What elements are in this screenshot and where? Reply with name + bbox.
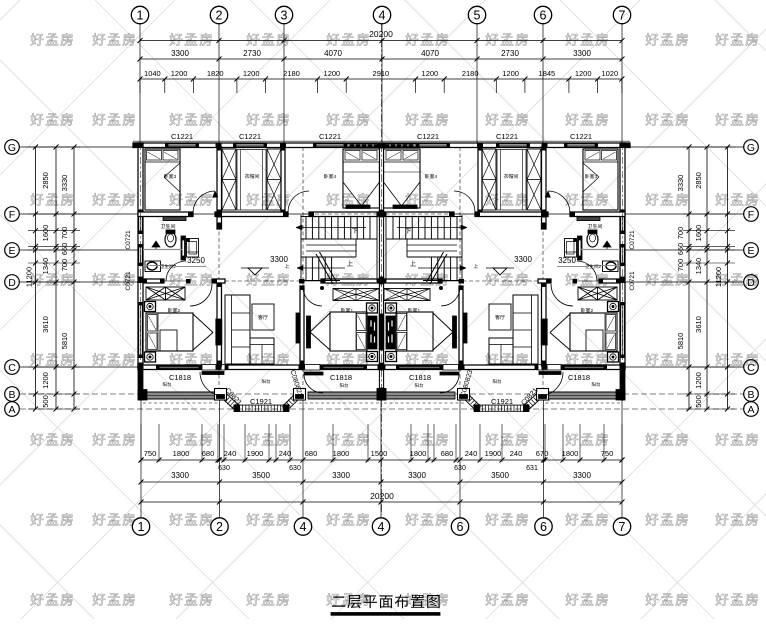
svg-text:3500: 3500	[491, 471, 509, 480]
svg-text:7: 7	[619, 520, 626, 534]
svg-text:B: B	[8, 389, 15, 401]
svg-text:C1221: C1221	[239, 132, 261, 141]
svg-text:1900: 1900	[247, 449, 264, 458]
svg-text:D: D	[747, 277, 755, 289]
svg-text:1200: 1200	[243, 69, 260, 78]
svg-text:1: 1	[351, 308, 354, 314]
svg-text:6: 6	[540, 9, 547, 23]
svg-text:2: 2	[178, 308, 181, 314]
svg-text:1600: 1600	[694, 225, 703, 242]
svg-text:3250: 3250	[187, 256, 205, 265]
svg-text:4: 4	[334, 174, 337, 180]
svg-text:3500: 3500	[252, 471, 270, 480]
svg-text:630: 630	[289, 465, 301, 472]
svg-text:4070: 4070	[421, 49, 439, 58]
svg-text:4: 4	[435, 174, 438, 180]
svg-text:700: 700	[676, 259, 685, 272]
svg-text:700: 700	[60, 227, 69, 240]
svg-text:660: 660	[676, 243, 685, 256]
svg-text:E: E	[8, 245, 15, 257]
svg-text:3: 3	[281, 9, 288, 23]
svg-text:C0721: C0721	[125, 271, 132, 291]
svg-text:1: 1	[138, 520, 145, 534]
svg-text:1800: 1800	[333, 449, 350, 458]
svg-text:C1818: C1818	[568, 373, 590, 382]
svg-text:E: E	[747, 245, 754, 257]
svg-text:660: 660	[60, 243, 69, 256]
svg-text:2: 2	[216, 520, 223, 534]
svg-text:2: 2	[216, 9, 223, 23]
svg-text:631: 631	[526, 465, 538, 472]
svg-text:2730: 2730	[501, 49, 519, 58]
svg-text:F: F	[9, 209, 15, 221]
svg-text:700: 700	[60, 259, 69, 272]
svg-text:3610: 3610	[694, 316, 703, 333]
svg-text:680: 680	[441, 449, 454, 458]
svg-text:C1818: C1818	[169, 373, 191, 382]
svg-text:750: 750	[144, 449, 157, 458]
svg-text:3330: 3330	[676, 175, 685, 192]
svg-text:C1221: C1221	[570, 132, 592, 141]
svg-text:1800: 1800	[562, 449, 579, 458]
svg-text:C0721: C0721	[125, 230, 132, 250]
svg-text:240: 240	[465, 449, 478, 458]
svg-text:2850: 2850	[41, 172, 50, 189]
svg-text:240: 240	[510, 449, 523, 458]
svg-text:500: 500	[694, 395, 703, 408]
svg-text:750: 750	[601, 449, 614, 458]
svg-text:1200: 1200	[41, 372, 50, 389]
svg-text:240: 240	[279, 449, 292, 458]
svg-text:3250: 3250	[558, 256, 576, 265]
svg-text:C1921: C1921	[491, 397, 513, 406]
svg-text:3: 3	[174, 174, 177, 180]
svg-text:4: 4	[379, 9, 386, 23]
svg-text:F: F	[748, 209, 754, 221]
svg-text:2910: 2910	[373, 69, 390, 78]
svg-text:1040: 1040	[144, 69, 161, 78]
svg-text:3300: 3300	[408, 471, 426, 480]
svg-text:3300: 3300	[573, 471, 591, 480]
svg-text:C1221: C1221	[171, 132, 193, 141]
svg-text:1200: 1200	[324, 69, 341, 78]
svg-text:C1921: C1921	[250, 397, 272, 406]
svg-text:1820: 1820	[207, 69, 224, 78]
svg-text:2730: 2730	[243, 49, 261, 58]
svg-text:20200: 20200	[369, 29, 393, 39]
svg-text:11200: 11200	[714, 267, 723, 287]
svg-text:3300: 3300	[270, 255, 288, 264]
svg-text:1200: 1200	[502, 69, 519, 78]
svg-text:3610: 3610	[41, 316, 50, 333]
svg-text:2180: 2180	[462, 69, 479, 78]
svg-text:4: 4	[378, 520, 385, 534]
svg-text:C: C	[747, 362, 755, 374]
svg-text:1020: 1020	[601, 69, 618, 78]
svg-text:680: 680	[305, 449, 318, 458]
svg-text:5810: 5810	[60, 333, 69, 350]
svg-text:4: 4	[300, 520, 307, 534]
svg-text:1340: 1340	[41, 258, 50, 275]
svg-text:C1221: C1221	[417, 132, 439, 141]
svg-text:2: 2	[591, 308, 594, 314]
svg-text:C1818: C1818	[330, 373, 352, 382]
svg-text:1200: 1200	[422, 69, 439, 78]
svg-text:A: A	[747, 404, 754, 416]
svg-text:G: G	[8, 142, 16, 154]
svg-text:11200: 11200	[25, 267, 34, 287]
svg-text:C0721: C0721	[629, 271, 636, 291]
svg-text:1: 1	[418, 308, 421, 314]
svg-text:1800: 1800	[173, 449, 190, 458]
svg-text:3300: 3300	[573, 49, 591, 58]
svg-text:C1221: C1221	[319, 132, 341, 141]
svg-text:1900: 1900	[485, 449, 502, 458]
svg-text:4070: 4070	[324, 49, 342, 58]
svg-text:1600: 1600	[41, 225, 50, 242]
svg-text:1200: 1200	[575, 69, 592, 78]
svg-text:3: 3	[595, 174, 598, 180]
svg-text:1500: 1500	[371, 449, 388, 458]
svg-text:3330: 3330	[60, 175, 69, 192]
svg-text:5810: 5810	[676, 333, 685, 350]
svg-text:2180: 2180	[283, 69, 300, 78]
svg-text:1340: 1340	[694, 258, 703, 275]
svg-text:1200: 1200	[694, 372, 703, 389]
svg-text:240: 240	[224, 449, 237, 458]
svg-text:1800: 1800	[410, 449, 427, 458]
svg-text:1200: 1200	[171, 69, 188, 78]
svg-text:1845: 1845	[539, 69, 556, 78]
svg-text:3300: 3300	[171, 471, 189, 480]
svg-text:C0721: C0721	[629, 230, 636, 250]
svg-text:3300: 3300	[171, 49, 189, 58]
svg-text:630: 630	[218, 465, 230, 472]
svg-text:D: D	[8, 277, 16, 289]
svg-text:G: G	[747, 142, 755, 154]
svg-text:3300: 3300	[514, 255, 532, 264]
svg-text:6: 6	[540, 520, 547, 534]
svg-text:680: 680	[202, 449, 215, 458]
svg-text:A: A	[8, 404, 15, 416]
svg-text:7: 7	[619, 9, 626, 23]
svg-text:630: 630	[454, 465, 466, 472]
svg-text:B: B	[747, 389, 754, 401]
svg-text:1: 1	[137, 9, 144, 23]
svg-text:C1818: C1818	[409, 373, 431, 382]
svg-text:C1221: C1221	[496, 132, 518, 141]
svg-text:500: 500	[41, 395, 50, 408]
svg-text:C: C	[8, 362, 16, 374]
svg-text:6: 6	[457, 520, 464, 534]
svg-text:2850: 2850	[694, 172, 703, 189]
svg-text:700: 700	[676, 227, 685, 240]
svg-text:3300: 3300	[332, 471, 350, 480]
svg-text:5: 5	[474, 9, 481, 23]
svg-text:670: 670	[536, 449, 549, 458]
svg-text:20200: 20200	[370, 491, 394, 501]
